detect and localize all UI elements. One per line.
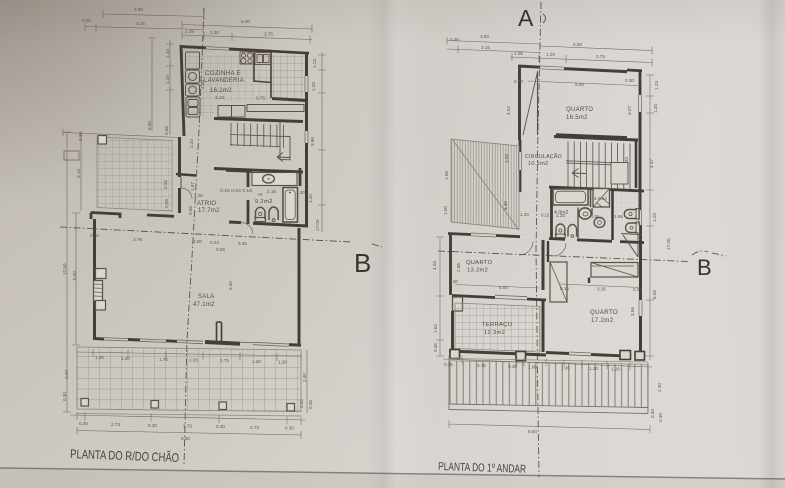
svg-text:9.50: 9.50 [528,429,537,434]
svg-text:0.15 0.84 0.15: 0.15 0.84 0.15 [220,188,252,193]
svg-text:3.07: 3.07 [627,106,632,115]
svg-text:1.05: 1.05 [185,29,194,34]
svg-text:4.0m2: 4.0m2 [594,196,607,201]
svg-text:1.55: 1.55 [614,214,623,219]
svg-text:6.00: 6.00 [573,42,582,47]
svg-text:17.2m2: 17.2m2 [591,317,614,324]
svg-text:0.30: 0.30 [450,37,459,42]
svg-text:1.20: 1.20 [652,213,657,222]
svg-text:3.00: 3.00 [200,80,205,89]
svg-text:0.35: 0.35 [508,364,517,369]
svg-text:1.45: 1.45 [561,366,570,371]
svg-text:0.30: 0.30 [62,392,67,401]
svg-text:3.15: 3.15 [481,45,490,50]
svg-text:QUARTO: QUARTO [466,260,493,266]
svg-text:5.40: 5.40 [228,281,233,290]
svg-text:2.40: 2.40 [657,383,662,392]
svg-text:0.24: 0.24 [210,240,219,245]
svg-text:3.80: 3.80 [134,7,143,12]
svg-text:3.14: 3.14 [76,169,81,178]
svg-text:2.40: 2.40 [64,370,69,379]
svg-text:2.18: 2.18 [267,189,276,194]
svg-text:8.00: 8.00 [147,121,152,130]
svg-text:1.23: 1.23 [312,59,317,68]
svg-text:1.20: 1.20 [121,356,130,361]
svg-text:0.30: 0.30 [82,18,91,23]
svg-text:16.5m2: 16.5m2 [566,115,588,121]
svg-text:0.99: 0.99 [164,199,169,208]
svg-text:1.20: 1.20 [311,82,316,91]
svg-text:3.18: 3.18 [215,95,224,100]
svg-text:12.3m2: 12.3m2 [484,330,505,336]
svg-text:0.30: 0.30 [514,79,523,84]
svg-text:3.98: 3.98 [310,137,315,146]
svg-text:TERRAÇO: TERRAÇO [482,322,513,328]
svg-text:2.73: 2.73 [250,425,259,430]
svg-text:1.75: 1.75 [220,358,229,363]
svg-text:12.50: 12.50 [62,263,67,275]
svg-text:6.00: 6.00 [241,19,250,24]
svg-text:3.25: 3.25 [238,241,247,246]
svg-text:SALA: SALA [198,294,215,300]
svg-text:6.00: 6.00 [72,271,77,280]
svg-text:3.76: 3.76 [133,237,142,242]
svg-text:1.20: 1.20 [308,194,313,203]
svg-text:A: A [518,5,534,31]
svg-text:ATRIO: ATRIO [197,201,216,207]
svg-text:QUARTO: QUARTO [566,107,593,113]
svg-text:3.35: 3.35 [597,287,606,292]
svg-text:9.2m2: 9.2m2 [255,199,273,205]
svg-text:1.20: 1.20 [504,154,509,163]
svg-text:0.30: 0.30 [285,426,294,431]
svg-text:1.20: 1.20 [653,104,658,113]
svg-text:1.75: 1.75 [159,357,168,362]
svg-text:1.06: 1.06 [444,171,449,180]
svg-text:47.1m2: 47.1m2 [193,302,215,308]
svg-text:QUARTO: QUARTO [590,309,618,316]
svg-text:4.37: 4.37 [649,159,654,168]
svg-text:0.35: 0.35 [444,362,453,367]
svg-text:2.00: 2.00 [194,193,203,198]
svg-text:4.03: 4.03 [432,261,437,270]
svg-text:2.73: 2.73 [111,422,120,427]
svg-text:0.55: 0.55 [216,247,225,252]
svg-text:1.20: 1.20 [210,30,219,35]
svg-text:0.15: 0.15 [560,286,569,291]
svg-text:PLANTA DO 1º ANDAR: PLANTA DO 1º ANDAR [438,461,526,476]
svg-text:0.30: 0.30 [79,421,88,426]
svg-text:LAVANDERIA: LAVANDERIA [204,78,244,84]
svg-text:2.20: 2.20 [189,139,194,148]
svg-text:5.50: 5.50 [499,285,508,290]
svg-text:1.20: 1.20 [589,366,598,371]
svg-text:COZINHA E: COZINHA E [205,71,241,77]
svg-text:0.75: 0.75 [256,96,265,101]
svg-text:B: B [697,255,712,280]
svg-text:B: B [354,248,371,278]
svg-text:1.20: 1.20 [520,212,529,217]
svg-text:0.30: 0.30 [216,424,225,429]
svg-text:0.30: 0.30 [148,423,157,428]
svg-text:1.20: 1.20 [189,358,198,363]
svg-text:1.57: 1.57 [190,182,195,191]
svg-text:3.75: 3.75 [264,32,273,37]
svg-text:0.30: 0.30 [449,279,458,284]
svg-text:CIRCULAÇÃO: CIRCULAÇÃO [525,153,562,160]
svg-text:17.00: 17.00 [315,219,320,231]
svg-text:1.50: 1.50 [193,239,202,244]
svg-text:1.20: 1.20 [95,355,104,360]
svg-text:0.35: 0.35 [308,400,313,409]
svg-text:0.30: 0.30 [625,78,634,83]
svg-text:1.00: 1.00 [443,206,448,215]
svg-text:1.20: 1.20 [165,75,170,84]
svg-text:0.30: 0.30 [633,287,642,292]
svg-text:1.20: 1.20 [611,367,620,372]
svg-text:3.15: 3.15 [136,21,145,26]
svg-text:17.00: 17.00 [666,238,671,250]
svg-text:1.62: 1.62 [433,324,438,333]
svg-text:0.86: 0.86 [188,206,193,215]
svg-text:1.23: 1.23 [654,81,659,90]
svg-text:8.50: 8.50 [181,436,190,441]
svg-text:6.00: 6.00 [652,290,657,299]
svg-text:2.73: 2.73 [183,424,192,429]
svg-text:2.86: 2.86 [456,263,461,272]
svg-text:3.15: 3.15 [477,363,486,368]
svg-text:0.35: 0.35 [433,343,438,352]
svg-text:1.20: 1.20 [546,52,555,57]
svg-text:0.15: 0.15 [541,213,550,218]
svg-text:1.23: 1.23 [165,49,170,58]
svg-text:10.5m2: 10.5m2 [528,161,548,167]
svg-text:3.50: 3.50 [480,34,489,39]
svg-text:3.56: 3.56 [630,307,635,316]
svg-text:3.75: 3.75 [596,54,605,59]
svg-text:2.40: 2.40 [302,373,307,382]
svg-text:0.35: 0.35 [658,413,663,422]
svg-text:4.02: 4.02 [506,106,511,115]
svg-text:PLANTA DO R/DO CHÃO: PLANTA DO R/DO CHÃO [70,447,180,465]
svg-text:0.93: 0.93 [163,180,168,189]
svg-text:1.20: 1.20 [278,360,287,365]
svg-text:1.05: 1.05 [514,51,523,56]
svg-text:1.80: 1.80 [528,365,537,370]
svg-text:13.2m2: 13.2m2 [467,268,488,274]
svg-text:1.25: 1.25 [556,213,565,218]
svg-text:1.20: 1.20 [252,359,261,364]
svg-text:1.45: 1.45 [279,97,288,102]
svg-text:3.40: 3.40 [503,201,508,210]
svg-text:3.58: 3.58 [164,126,169,135]
svg-text:0.30: 0.30 [650,409,655,418]
svg-text:16.2m2: 16.2m2 [210,88,232,94]
